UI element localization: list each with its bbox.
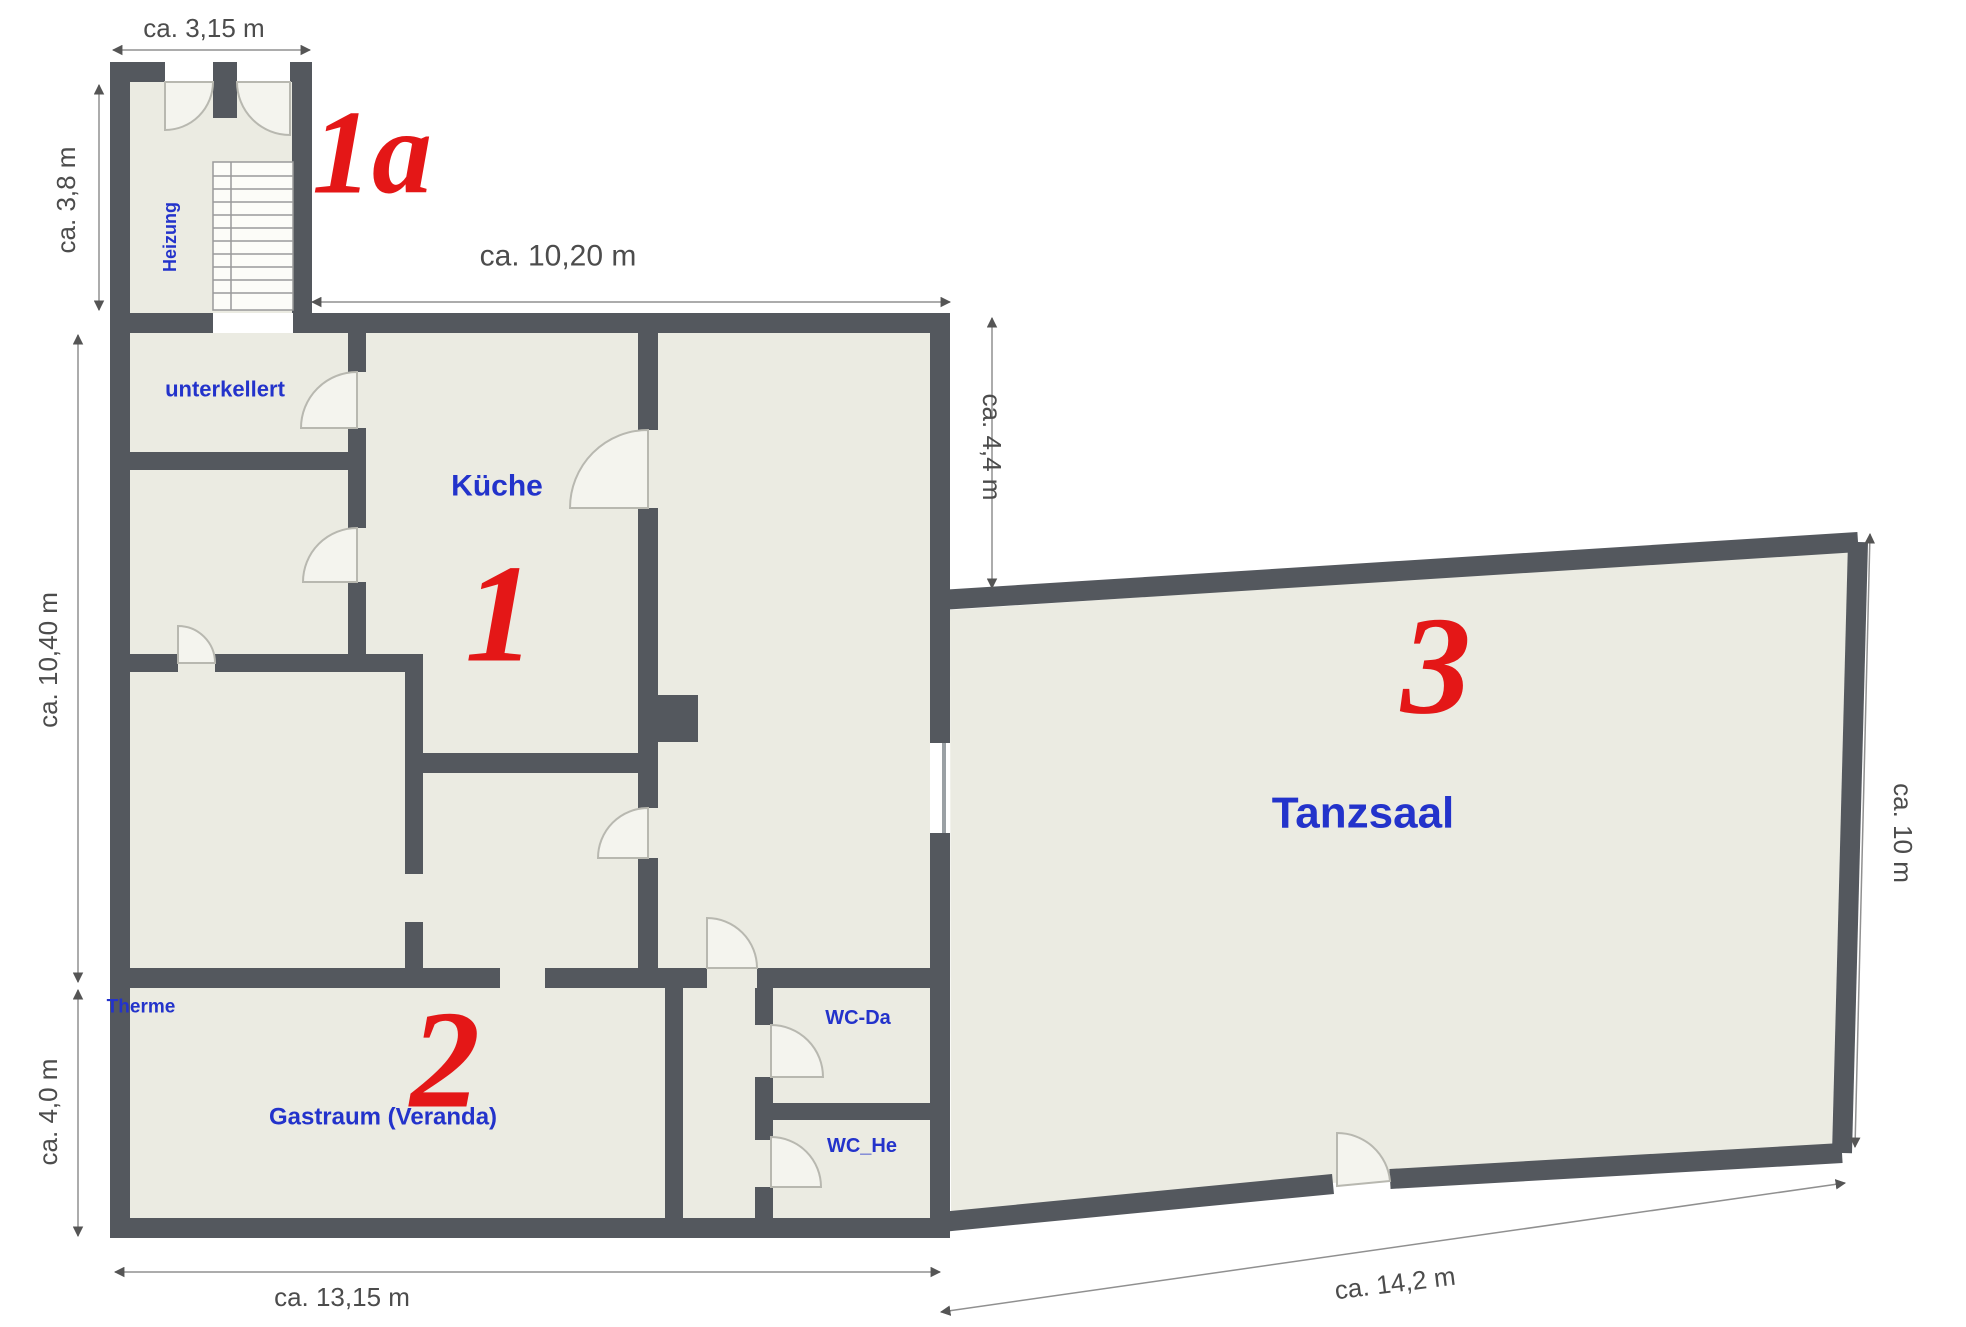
wall-segment: [755, 1077, 773, 1140]
wall-segment: [405, 753, 658, 773]
room-label-therme: Therme: [107, 997, 176, 1018]
dimension-text-left-lower: ca. 4,0 m: [33, 1059, 63, 1166]
wall-segment: [755, 988, 773, 1025]
wall-segment: [110, 1218, 950, 1238]
stairs-outline: [213, 162, 293, 310]
annex-building: [110, 62, 312, 333]
wall-segment: [773, 1103, 930, 1120]
wall-segment: [213, 62, 237, 118]
dimension-text-offset-right: ca. 4,4 m: [977, 394, 1007, 501]
room-label-heizung: Heizung: [160, 202, 180, 272]
main-building: [110, 313, 950, 1238]
chimney-block: [658, 695, 698, 742]
tanzsaal-room: [950, 550, 1848, 1212]
wall-segment: [638, 333, 658, 430]
section-number-1: 1: [465, 537, 535, 692]
wall-segment: [665, 988, 683, 1218]
wall-segment: [638, 508, 658, 808]
section-number-3: 3: [1399, 589, 1471, 744]
staircase: [213, 162, 293, 310]
wall-segment: [930, 313, 950, 743]
wall-segment: [292, 62, 312, 313]
room-label-wc-he: WC_He: [827, 1135, 897, 1157]
dimension-text-main-top: ca. 10,20 m: [480, 240, 637, 273]
section-number-1a: 1a: [312, 86, 432, 219]
floor-plan-drawing: Heizung unterkellert Küche Therme Gastra…: [0, 0, 1966, 1327]
dimension-text-main-bottom: ca. 13,15 m: [274, 1282, 410, 1312]
wall-segment: [545, 968, 707, 988]
dimension-text-hall-bottom: ca. 14,2 m: [1333, 1261, 1457, 1306]
floor-plan-page: Heizung unterkellert Küche Therme Gastra…: [0, 0, 1966, 1327]
dimension-text-hall-right: ca. 10 m: [1888, 783, 1918, 883]
wall-segment: [405, 922, 423, 968]
dimension-text-left-upper: ca. 10,40 m: [33, 592, 63, 728]
wall-segment: [293, 313, 950, 333]
room-label-tanzsaal: Tanzsaal: [1272, 789, 1455, 838]
wall-segment: [348, 333, 366, 372]
hall-building: [940, 542, 1858, 1222]
wall-segment: [755, 1187, 773, 1218]
room-label-kueche: Küche: [451, 470, 543, 503]
wall-segment: [638, 858, 658, 968]
room-label-unterkellert: unterkellert: [165, 377, 285, 402]
section-number-2: 2: [408, 983, 480, 1138]
dimension-text-annex-height: ca. 3,8 m: [51, 147, 81, 254]
wall-segment: [130, 654, 178, 672]
room-label-wc-da: WC-Da: [825, 1007, 891, 1029]
dimension-text-annex-width: ca. 3,15 m: [143, 13, 264, 43]
wall-segment: [110, 313, 130, 1238]
wall-segment: [215, 654, 423, 672]
wall-segment: [130, 452, 348, 470]
wall-segment: [110, 62, 130, 333]
wall-segment: [757, 968, 950, 988]
wall-segment: [348, 428, 366, 528]
wall-segment: [930, 833, 950, 1238]
